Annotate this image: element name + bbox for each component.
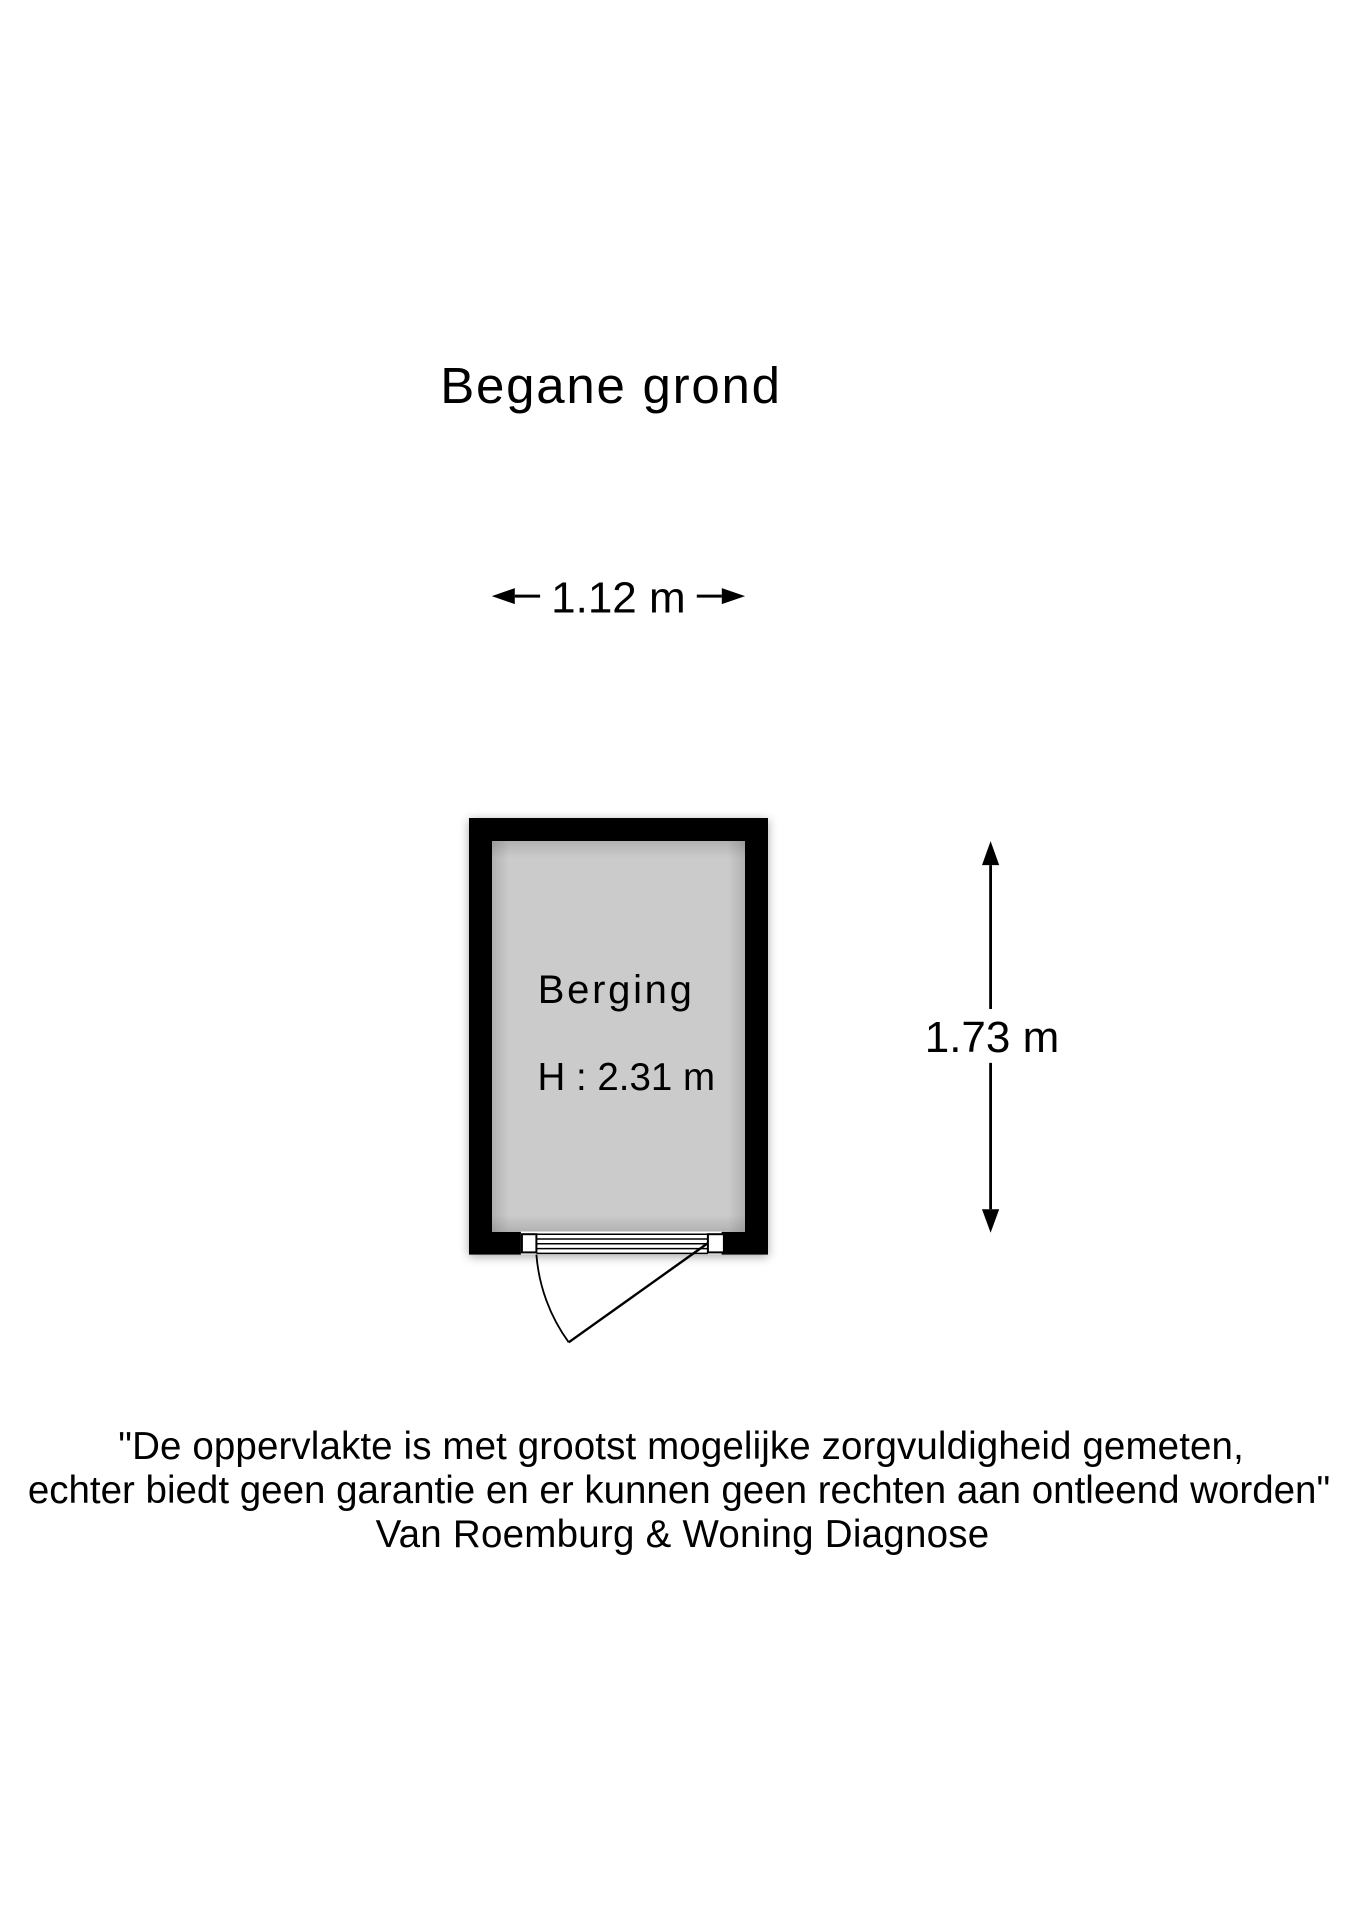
svg-text:Begane grond: Begane grond xyxy=(440,357,781,414)
svg-text:H : 2.31 m: H : 2.31 m xyxy=(538,1056,716,1099)
svg-text:1.12 m: 1.12 m xyxy=(551,574,686,623)
svg-text:Van Roemburg & Woning Diagnose: Van Roemburg & Woning Diagnose xyxy=(376,1513,990,1556)
svg-text:1.73 m: 1.73 m xyxy=(925,1013,1060,1062)
svg-text:"De oppervlakte is met grootst: "De oppervlakte is met grootst mogelijke… xyxy=(118,1425,1244,1468)
svg-text:echter biedt geen garantie en: echter biedt geen garantie en er kunnen … xyxy=(28,1469,1330,1512)
svg-text:Berging: Berging xyxy=(538,968,695,1012)
